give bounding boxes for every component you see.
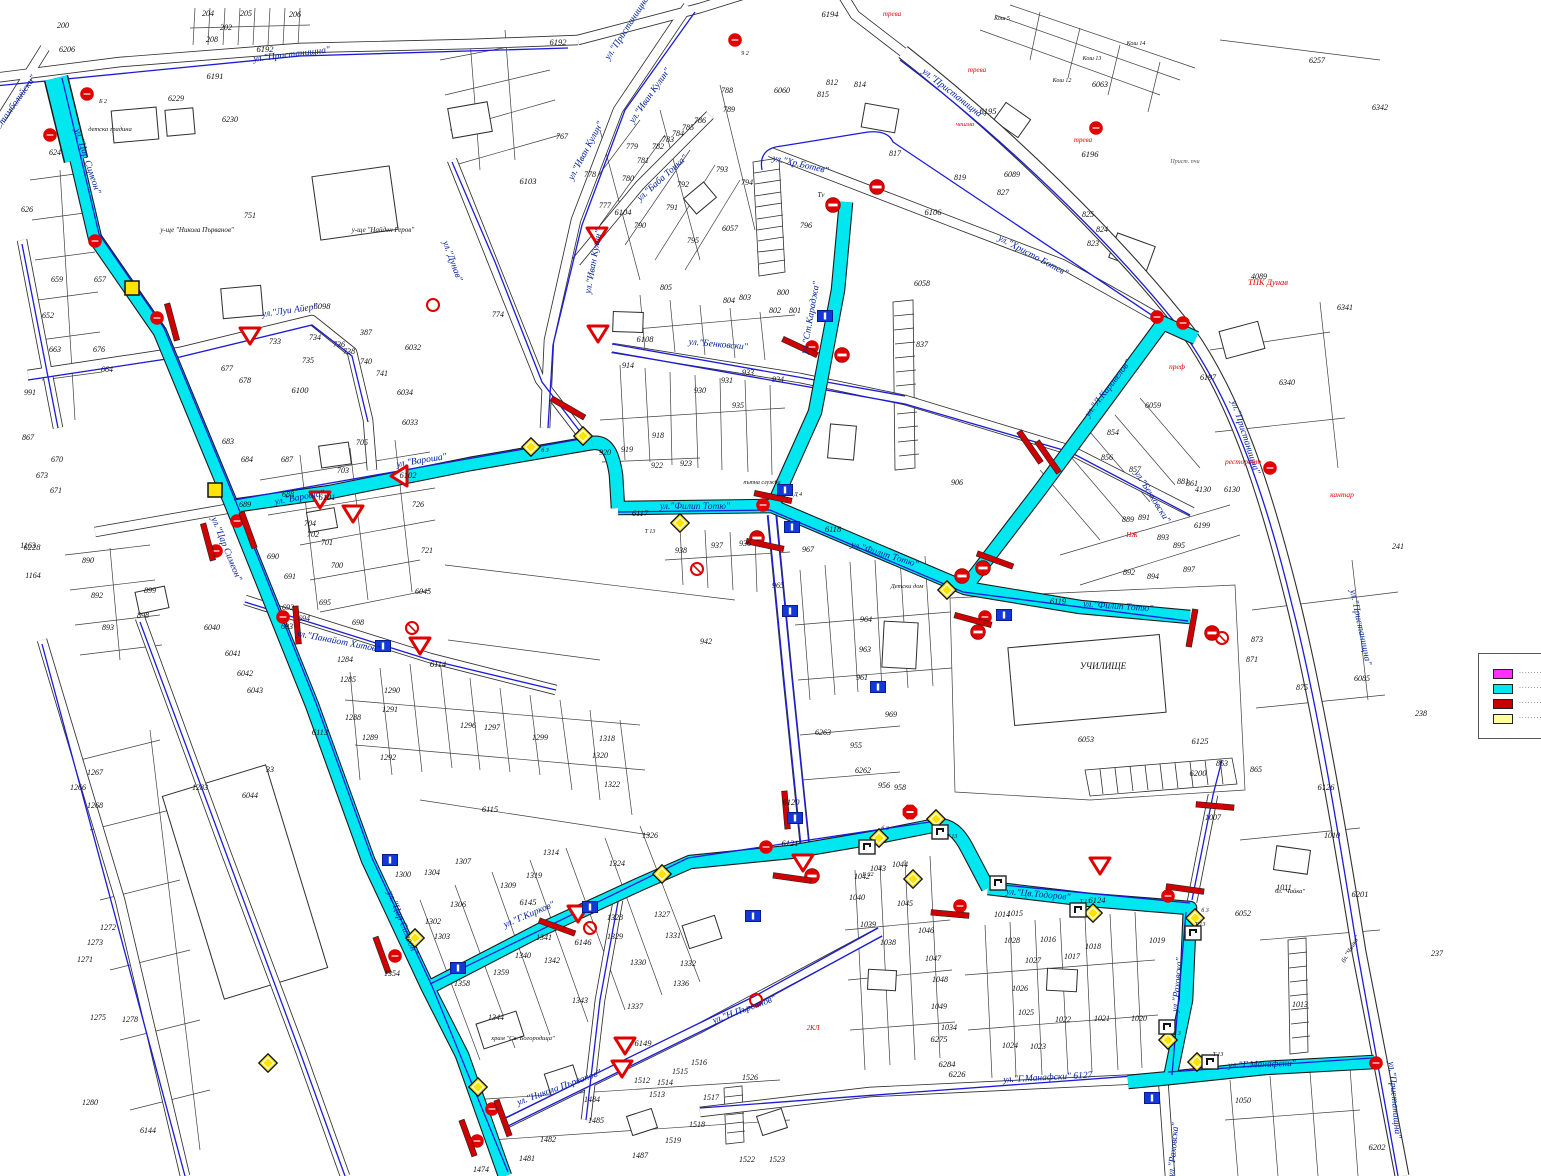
parcel-number-label: 796: [800, 221, 812, 230]
parcel-number-label: 6045: [415, 587, 431, 596]
parcel-number-label: 937: [711, 541, 724, 550]
parcel-number-label: 964: [860, 615, 872, 624]
street-code-label: 6104: [615, 207, 633, 217]
poi-label: Тv: [818, 191, 826, 199]
route-point-marker-icon: [728, 33, 742, 47]
street-name-label: ул."Христо Ботев": [995, 233, 1070, 279]
hydrant-sign-icon: [871, 682, 886, 693]
parcel-number-label: 1330: [630, 958, 646, 967]
parcel-number-label: 1292: [380, 753, 396, 762]
parcel-number-label: 1344: [488, 1013, 504, 1022]
parcel-number-label: 1026: [1012, 984, 1028, 993]
legend-label: ···········: [1519, 715, 1541, 722]
route-point-marker-icon: [88, 234, 102, 248]
parcel-number-label: 1328: [607, 913, 623, 922]
parcel-number-label: 1340: [515, 951, 531, 960]
parcel-number-label: 702: [307, 530, 319, 539]
legend-row-planned: ···········: [1493, 666, 1541, 681]
route-point-marker-icon: [150, 311, 164, 325]
info-sign-icon: [1070, 903, 1086, 917]
parcel-number-label: 1302: [425, 917, 441, 926]
route-point-marker-icon: [1369, 1056, 1383, 1070]
parcel-number-label: 200: [57, 21, 69, 30]
parcel-number-label: 1481: [519, 1154, 535, 1163]
legend-row-other: ···········: [1493, 711, 1541, 726]
parcel-number-label: 785: [682, 123, 694, 132]
route-point-marker-icon: [756, 498, 770, 512]
parcel-number-label: 867: [22, 433, 35, 442]
yellow-sign-icon: [208, 483, 222, 497]
parcel-number-label: 705: [356, 438, 368, 447]
street-code-label: 6194: [822, 9, 840, 19]
parcel-number-label: 238: [1415, 709, 1427, 718]
parcel-number-label: 733: [269, 337, 281, 346]
poi-label: ресторант: [1224, 457, 1262, 466]
parcel-number-label: 1039: [860, 920, 876, 929]
parcel-number-label: 1319: [526, 871, 542, 880]
parcel-numbers: 2002042052022062086206623062297516246266…: [20, 9, 1444, 1174]
poi-label: б 3: [881, 825, 889, 832]
street-name-label: ул."Дунав": [440, 239, 465, 284]
route-point-marker-icon: [388, 949, 402, 963]
yield-sign-icon: [588, 326, 608, 342]
hydrant-sign-icon: [383, 855, 398, 866]
street-name-label: ул."Филип Тотю": [849, 540, 921, 571]
parcel-number-label: 387: [359, 328, 373, 337]
hydrant-sign-icon: [583, 902, 598, 913]
street-code-label: 6202: [1369, 1142, 1387, 1152]
parcel-number-label: 208: [206, 35, 218, 44]
parcel-number-label: 204: [202, 9, 214, 18]
parcel-number-label: 6144: [140, 1126, 156, 1135]
poi-label: Т 13: [947, 834, 958, 840]
parcel-number-label: 1484: [584, 1095, 600, 1104]
parcel-number-label: 923: [680, 459, 692, 468]
parcel-number-label: 893: [1157, 533, 1169, 542]
parcel-number-label: 698: [352, 618, 364, 627]
parcel-number-label: 780: [622, 174, 634, 183]
hydrant-sign-icon: [785, 522, 800, 533]
poi-label: у-ще "Найден Геров": [351, 226, 415, 234]
parcel-number-label: 875: [1296, 683, 1308, 692]
street-name-label: ул."Л.Каравелов": [1083, 358, 1135, 420]
parcel-number-label: 792: [677, 180, 689, 189]
priority-road-sign-icon: [259, 1054, 277, 1072]
parcel-number-label: 935: [732, 401, 744, 410]
poi-label: б 3: [1173, 1030, 1181, 1037]
parcel-number-label: 6199: [1194, 521, 1210, 530]
legend-swatch-1: [1493, 684, 1513, 694]
no-entry-sign-icon: [835, 348, 850, 363]
yellow-sign-icon: [125, 281, 139, 295]
parcel-number-label: 1487: [632, 1151, 649, 1160]
parcel-number-label: 1164: [25, 571, 40, 580]
parcel-number-label: 659: [51, 275, 63, 284]
poi-label: Т 13: [1213, 1052, 1224, 1058]
parcel-number-label: 1046: [918, 926, 934, 935]
street-code-label: 6196: [1082, 149, 1100, 159]
parcel-number-label: 893: [102, 623, 114, 632]
street-code-label: 6146: [575, 937, 593, 947]
poi-label: пътна служба: [743, 479, 780, 486]
parcel-number-label: 918: [652, 431, 664, 440]
parcel-number-label: 892: [1123, 568, 1135, 577]
parcel-number-label: 1288: [345, 713, 361, 722]
parcel-number-label: 837: [916, 340, 929, 349]
poi-label: Кош 5: [993, 16, 1010, 22]
no-entry-sign-icon: [976, 561, 991, 576]
info-sign-icon: [859, 840, 875, 854]
legend-swatch-0: [1493, 669, 1513, 679]
parcel-number-label: 1285: [340, 675, 356, 684]
parcel-number-label: 652: [42, 311, 54, 320]
parcel-number-label: 898: [137, 611, 149, 620]
parcel-number-label: 1485: [588, 1116, 604, 1125]
parcel-number-label: 692: [282, 603, 294, 612]
parcel-number-label: 942: [700, 637, 712, 646]
street-code-label: 6145: [520, 897, 537, 907]
parcel-number-label: 6041: [225, 649, 241, 658]
parcel-number-label: 721: [421, 546, 433, 555]
parcel-number-label: 1474: [473, 1165, 489, 1174]
parcel-number-label: 6053: [1078, 735, 1094, 744]
parcel-number-label: 6230: [222, 115, 238, 124]
parcel-number-label: 791: [666, 203, 678, 212]
parcel-number-label: 956: [878, 781, 890, 790]
parcel-number-label: 1512: [634, 1076, 650, 1085]
street-name-label: ул."Пристанищна": [1347, 588, 1373, 667]
street-code-label: 6103: [520, 176, 537, 186]
poi-label: храм "Св. Богородица": [490, 1035, 555, 1042]
parcel-number-label: 1309: [500, 881, 516, 890]
poi-label: Т 13: [1080, 899, 1091, 905]
legend-row-highlighted: ···········: [1493, 681, 1541, 696]
parcel-number-label: 1038: [880, 938, 896, 947]
parcel-number-label: 6085: [1354, 674, 1370, 683]
parcel-number-label: 1024: [1002, 1041, 1018, 1050]
priority-road-sign-icon: [671, 514, 689, 532]
parcel-number-label: 817: [889, 149, 902, 158]
parcel-number-label: 804: [723, 296, 735, 305]
parcel-number-label: 6043: [247, 686, 263, 695]
parcel-number-label: 961: [856, 673, 868, 682]
info-sign-icon: [990, 876, 1006, 890]
street-code-label: 6201: [1352, 889, 1369, 899]
parcel-number-label: 695: [319, 598, 331, 607]
parcel-number-label: 891: [1138, 513, 1150, 522]
poi-label: ТПК Дунав: [1248, 277, 1288, 287]
parcel-number-label: 1326: [642, 831, 658, 840]
poi-label: преф: [1169, 362, 1186, 371]
parcel-number-label: 933: [742, 368, 754, 377]
no-entry-sign-icon: [955, 569, 970, 584]
parcel-number-label: 1266: [70, 783, 86, 792]
poi-label: УЧИЛИЩЕ: [1080, 661, 1127, 671]
parcel-number-label: 1519: [665, 1136, 681, 1145]
street-code-label: 6117: [632, 508, 649, 518]
parcel-number-label: 1299: [532, 733, 548, 742]
parcel-number-label: 673: [36, 471, 48, 480]
parcel-number-label: 873: [1251, 635, 1263, 644]
parcel-number-label: 1331: [665, 931, 681, 940]
parcel-number-label: 1513: [649, 1090, 665, 1099]
parcel-number-label: 689: [239, 500, 251, 509]
parcel-number-label: 741: [376, 369, 388, 378]
parcel-number-label: 922: [651, 461, 663, 470]
parcel-number-label: 677: [221, 364, 234, 373]
street-code-label: 6108: [637, 334, 655, 344]
parcel-number-label: 802: [769, 306, 781, 315]
poi-label: НЖ: [1125, 531, 1138, 539]
legend-swatch-3: [1493, 714, 1513, 724]
route-point-marker-icon: [43, 128, 57, 142]
stop-sign-icon: [902, 804, 918, 820]
parcel-number-label: 6340: [1279, 378, 1295, 387]
parcel-number-label: 6197: [1200, 373, 1217, 382]
poi-label: бл."Чайка": [1275, 888, 1305, 895]
parcel-number-label: 626: [21, 205, 33, 214]
parcel-number-label: 6042: [237, 669, 253, 678]
parcel-number-label: 920: [599, 448, 611, 457]
route-point-marker-icon: [953, 899, 967, 913]
map-svg: 2002042052022062086206623062297516246266…: [0, 0, 1541, 1176]
legend-swatch-2: [1493, 699, 1513, 709]
parcel-number-label: 790: [634, 221, 646, 230]
parcel-number-label: 767: [556, 132, 569, 141]
no-stopping-sign-icon: [406, 622, 418, 634]
parcel-number-label: 6032: [405, 343, 421, 352]
parcel-number-label: 1268: [87, 801, 103, 810]
parcel-number-label: 734: [309, 333, 321, 342]
street-name-label: ул."Пристанищна": [919, 66, 987, 122]
poi-label: кантар: [1330, 490, 1354, 499]
parcel-number-label: 1271: [77, 955, 93, 964]
parcel-number-label: 863: [1216, 759, 1228, 768]
route-point-marker-icon: [1176, 316, 1190, 330]
barrier-bar-icon: [1196, 802, 1234, 811]
parcel-number-label: 740: [360, 357, 372, 366]
street-code-label: 6100: [292, 385, 310, 395]
parcel-number-label: 800: [777, 288, 789, 297]
parcel-number-label: 657: [94, 275, 107, 284]
parcel-number-label: 1300: [395, 870, 411, 879]
legend-header: · · ·: [1493, 658, 1541, 666]
parcel-number-label: 1017: [1064, 952, 1081, 961]
parcel-number-label: 805: [660, 283, 672, 292]
parcel-number-label: 781: [637, 156, 649, 165]
parcel-number-label: 1049: [931, 1002, 947, 1011]
parcel-number-label: 936: [739, 539, 751, 548]
poi-label: Б 22: [861, 872, 873, 878]
parcel-number-label: 919: [621, 445, 633, 454]
parcel-number-label: 6089: [1004, 170, 1020, 179]
parcel-number-label: 931: [721, 376, 733, 385]
parcel-number-label: 899: [144, 586, 156, 595]
parcel-number-label: 1275: [90, 1013, 106, 1022]
parcel-number-label: 1019: [1149, 936, 1165, 945]
parcel-number-label: 678: [239, 376, 251, 385]
parcel-number-label: 778: [584, 170, 596, 179]
parcel-number-label: 1044: [892, 860, 908, 869]
parcel-number-label: 1342: [544, 956, 560, 965]
parcel-number-label: 1022: [1055, 1015, 1071, 1024]
poi-label: Б 2: [98, 99, 107, 105]
poi-label: трева: [883, 10, 902, 18]
parcel-number-label: 1020: [1131, 1014, 1147, 1023]
parcel-number-label: 1289: [362, 733, 378, 742]
parcel-number-label: 735: [302, 356, 314, 365]
poi-label: детска градина: [88, 126, 132, 133]
route-point-marker-icon: [759, 840, 773, 854]
map-canvas[interactable]: 2002042052022062086206623062297516246266…: [0, 0, 1541, 1176]
parcel-number-label: 1518: [689, 1120, 705, 1129]
parcel-number-label: 6342: [1372, 103, 1388, 112]
parcel-number-label: 892: [91, 591, 103, 600]
parcel-number-label: 1040: [849, 893, 865, 902]
street-code-label: 6228: [24, 542, 42, 552]
parcel-number-label: 934: [772, 375, 784, 384]
parcel-number-label: 1303: [434, 932, 450, 941]
street-code-label: 6113: [312, 727, 328, 737]
yield-sign-icon: [615, 1038, 635, 1054]
parcel-number-label: 1267: [87, 768, 104, 777]
parcel-number-label: 814: [854, 80, 866, 89]
parcel-number-label: 803: [739, 293, 751, 302]
hydrant-sign-icon: [783, 606, 798, 617]
yield-sign-icon: [1090, 858, 1110, 874]
parcel-number-label: 889: [1122, 515, 1134, 524]
hydrant-sign-icon: [778, 485, 793, 496]
parcel-number-label: 6229: [168, 94, 184, 103]
parcel-number-label: 1522: [739, 1155, 755, 1164]
parcel-number-label: 6060: [774, 86, 790, 95]
street-name-label: ул."Бенковски": [687, 337, 749, 352]
parcel-number-label: 700: [331, 561, 343, 570]
parcel-number-label: 751: [244, 211, 256, 220]
info-sign-icon: [1185, 926, 1201, 940]
route-point-marker-icon: [1089, 121, 1103, 135]
street-code-label: 6126: [1318, 782, 1336, 792]
parcel-number-label: 779: [626, 142, 638, 151]
parcel-number-label: 1324: [609, 859, 625, 868]
route-point-marker-icon: [1150, 310, 1164, 324]
parcel-number-label: 955: [850, 741, 862, 750]
parcel-number-label: 6341: [1337, 303, 1353, 312]
parcel-number-label: 1314: [543, 848, 559, 857]
street-code-label: 6226: [949, 1069, 967, 1079]
parcel-number-label: 205: [240, 9, 252, 18]
parcel-number-label: 1291: [382, 705, 398, 714]
parcel-number-label: 1283: [192, 783, 208, 792]
parcel-number-label: 906: [951, 478, 963, 487]
parcel-number-label: 663: [49, 345, 61, 354]
parcel-number-label: 701: [321, 538, 333, 547]
parcel-number-label: 801: [789, 306, 801, 315]
legend: · · · ··········· ··········· ··········…: [1478, 653, 1541, 739]
legend-label: ···········: [1519, 700, 1541, 707]
parcel-number-label: 1329: [607, 932, 623, 941]
parcel-number-label: 1272: [100, 923, 116, 932]
parcel-number-label: 687: [281, 455, 294, 464]
parcel-number-label: 6040: [204, 623, 220, 632]
street-name-label: ул."Иван Кулин": [583, 228, 604, 295]
poi-label: чешма: [956, 121, 974, 128]
parcel-number-label: 827: [997, 188, 1010, 197]
parcel-number-label: 683: [222, 437, 234, 446]
parcel-number-label: 693: [281, 622, 293, 631]
parcel-number-label: 1332: [680, 959, 696, 968]
parcel-number-label: 676: [93, 345, 105, 354]
parcel-number-label: 671: [50, 486, 62, 495]
ring-sign-icon: [427, 299, 439, 311]
parcel-number-label: 694: [298, 614, 310, 623]
street-code-label: 6149: [635, 1038, 653, 1048]
parcel-number-label: 1514: [657, 1078, 673, 1087]
street-code-label: 6192: [550, 37, 568, 47]
parcel-number-label: 6063: [1092, 80, 1108, 89]
parcel-number-label: 1307: [455, 857, 472, 866]
yield-sign-icon: [343, 506, 363, 522]
parcel-number-label: 823: [1087, 239, 1099, 248]
poi-label: Кош 12: [1052, 78, 1072, 84]
parcel-number-label: 1280: [82, 1098, 98, 1107]
parcel-number-label: 1045: [897, 899, 913, 908]
parcel-number-label: 865: [1250, 765, 1262, 774]
parcel-number-label: 824: [1096, 225, 1108, 234]
parcel-number-label: 854: [1107, 428, 1119, 437]
parcel-number-label: 1028: [1004, 936, 1020, 945]
parcel-number-label: 6257: [1309, 56, 1326, 65]
parcel-number-label: 967: [802, 545, 815, 554]
parcel-number-label: 819: [954, 173, 966, 182]
parcel-number-label: 1018: [1085, 942, 1101, 951]
poi-label: б 3: [541, 447, 549, 454]
no-entry-sign-icon: [971, 625, 986, 640]
parcel-number-label: 969: [885, 710, 897, 719]
parcel-number-label: 965: [772, 581, 784, 590]
parcel-number-label: 6058: [914, 279, 930, 288]
parcel-number-label: 1343: [572, 996, 588, 1005]
hydrant-sign-icon: [788, 813, 803, 824]
parcel-number-label: 1025: [1018, 1008, 1034, 1017]
parcel-number-label: 703: [337, 466, 349, 475]
parcel-number-label: 856: [1101, 453, 1113, 462]
parcel-number-label: 1526: [742, 1073, 758, 1082]
parcel-number-label: 726: [412, 500, 424, 509]
poi-label: Кош 13: [1082, 56, 1102, 62]
parcel-number-label: 6263: [815, 728, 831, 737]
street-code-label: 6115: [482, 804, 498, 814]
hydrant-sign-icon: [1145, 1093, 1160, 1104]
no-entry-sign-icon: [826, 198, 841, 213]
parcel-number-label: 1290: [384, 686, 400, 695]
parcel-number-label: 1015: [1007, 909, 1023, 918]
parcel-number-label: 6033: [402, 418, 418, 427]
parcel-number-label: 6206: [59, 45, 75, 54]
parcel-number-label: 825: [1082, 210, 1094, 219]
parcel-number-label: 1322: [604, 780, 620, 789]
street-code-label: 6106: [925, 207, 943, 217]
parcel-number-label: 1517: [703, 1093, 720, 1102]
parcel-number-label: 1336: [673, 979, 689, 988]
parcel-number-label: 1007: [1205, 813, 1222, 822]
parcel-number-label: 1284: [337, 655, 353, 664]
parcel-number-label: 241: [1392, 542, 1404, 551]
poi-label: Т 13: [1195, 922, 1206, 928]
street-code-label: 6121: [782, 838, 799, 848]
parcel-number-label: 237: [1431, 949, 1444, 958]
street-code-label: 6125: [1192, 736, 1209, 746]
